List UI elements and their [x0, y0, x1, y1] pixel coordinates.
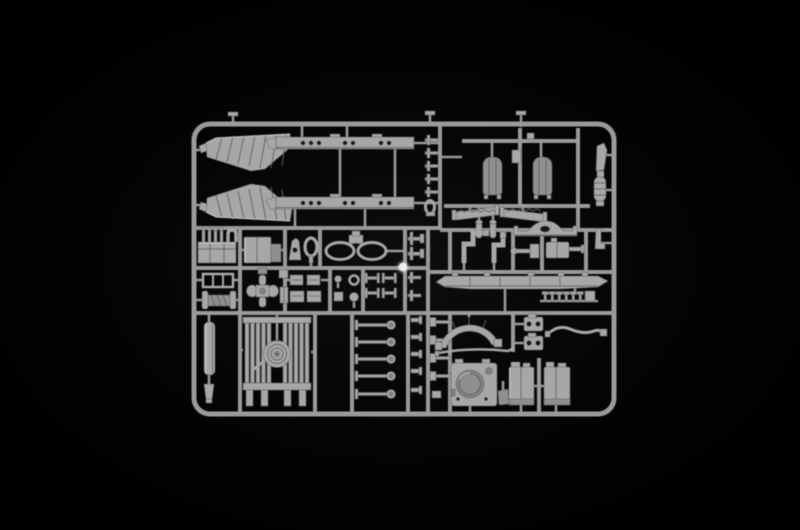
cylinder-part — [204, 322, 215, 403]
bright-spot — [395, 259, 411, 275]
mount-plate-part — [451, 359, 497, 406]
sprue-image — [0, 0, 800, 530]
flap-part — [498, 389, 509, 405]
sprue-photo — [0, 0, 800, 530]
